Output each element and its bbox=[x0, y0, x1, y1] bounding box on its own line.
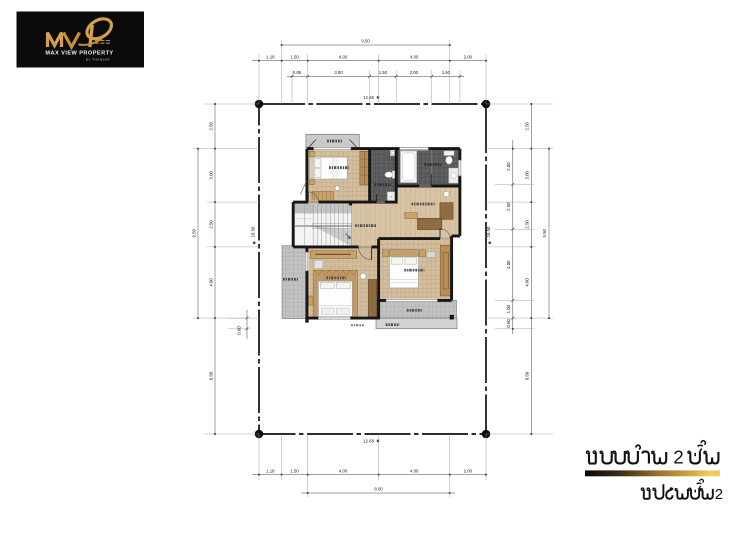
svg-text:3.00: 3.00 bbox=[525, 171, 530, 180]
svg-text:18.50: 18.50 bbox=[251, 226, 256, 237]
svg-text:4.00: 4.00 bbox=[339, 54, 348, 59]
svg-text:4.00: 4.00 bbox=[506, 260, 511, 269]
svg-text:2.00: 2.00 bbox=[464, 54, 473, 59]
svg-text:8.00: 8.00 bbox=[374, 487, 383, 492]
svg-text:4.00: 4.00 bbox=[410, 54, 419, 59]
svg-text:2.50: 2.50 bbox=[525, 220, 530, 229]
svg-text:4.00: 4.00 bbox=[339, 468, 348, 473]
svg-text:2.00: 2.00 bbox=[410, 70, 419, 75]
svg-text:12.68: 12.68 bbox=[363, 439, 374, 444]
svg-text:2.50: 2.50 bbox=[525, 122, 530, 131]
svg-text:1.50: 1.50 bbox=[290, 468, 299, 473]
svg-text:3.00: 3.00 bbox=[209, 171, 214, 180]
svg-text:BY THANSAP: BY THANSAP bbox=[86, 57, 111, 61]
svg-text:2.00: 2.00 bbox=[464, 468, 473, 473]
svg-text:2: 2 bbox=[673, 447, 683, 468]
svg-text:12.68: 12.68 bbox=[363, 95, 374, 100]
svg-text:MAX VIEW PROPERTY: MAX VIEW PROPERTY bbox=[45, 51, 113, 57]
svg-text:18.50: 18.50 bbox=[486, 226, 491, 237]
svg-text:3.50: 3.50 bbox=[334, 70, 343, 75]
svg-text:2.50: 2.50 bbox=[209, 220, 214, 229]
svg-text:9.50: 9.50 bbox=[361, 39, 370, 44]
svg-text:0.85: 0.85 bbox=[293, 70, 302, 75]
svg-text:4.00: 4.00 bbox=[410, 468, 419, 473]
svg-text:2.50: 2.50 bbox=[209, 122, 214, 131]
svg-text:2: 2 bbox=[715, 486, 723, 503]
svg-text:1.18: 1.18 bbox=[266, 468, 275, 473]
svg-text:1.60: 1.60 bbox=[442, 70, 451, 75]
svg-text:9.50: 9.50 bbox=[192, 229, 197, 238]
svg-text:4.00: 4.00 bbox=[209, 278, 214, 287]
svg-text:1.50: 1.50 bbox=[290, 54, 299, 59]
svg-text:2.00: 2.00 bbox=[506, 162, 511, 171]
svg-text:2.50: 2.50 bbox=[506, 202, 511, 211]
svg-text:0.60: 0.60 bbox=[506, 319, 511, 328]
svg-text:6.50: 6.50 bbox=[525, 371, 530, 380]
svg-text:0.60: 0.60 bbox=[237, 326, 242, 335]
svg-text:1.00: 1.00 bbox=[506, 304, 511, 313]
svg-text:1.50: 1.50 bbox=[379, 70, 388, 75]
svg-text:9.50: 9.50 bbox=[542, 229, 547, 238]
svg-text:4.00: 4.00 bbox=[525, 278, 530, 287]
svg-text:1.18: 1.18 bbox=[266, 54, 275, 59]
svg-text:6.50: 6.50 bbox=[209, 371, 214, 380]
